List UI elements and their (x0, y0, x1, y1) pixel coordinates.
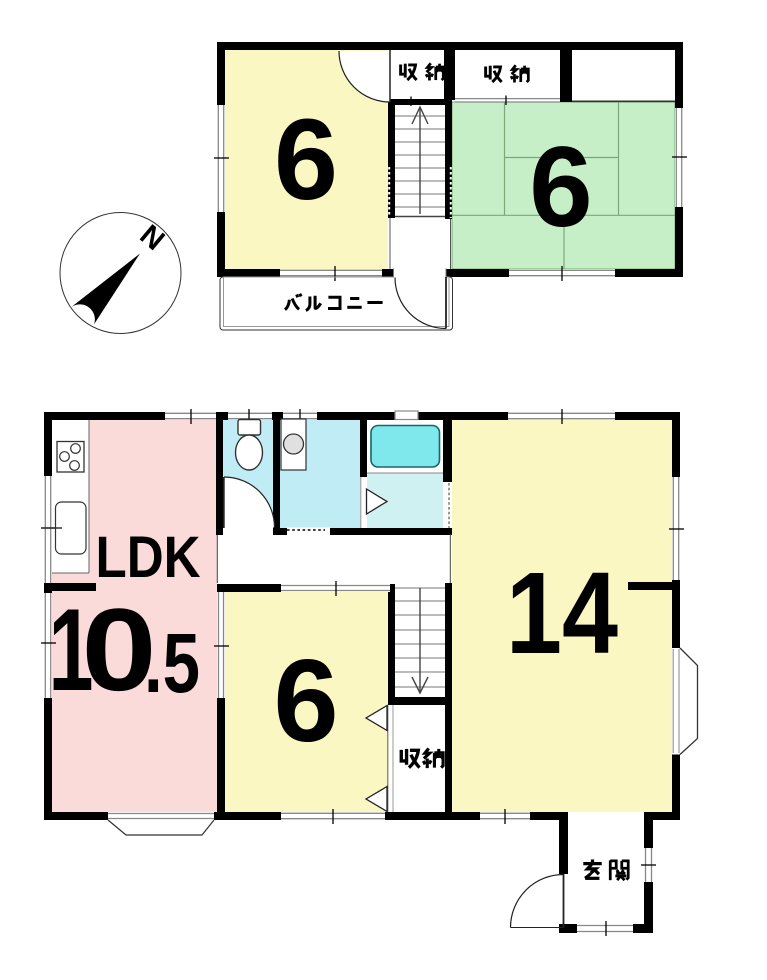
svg-text:LDK: LDK (96, 525, 201, 590)
svg-text:.5: .5 (144, 616, 200, 710)
svg-text:6: 6 (274, 96, 338, 224)
svg-text:6: 6 (529, 124, 592, 251)
svg-text:6: 6 (273, 635, 338, 766)
svg-text:14: 14 (506, 548, 618, 678)
